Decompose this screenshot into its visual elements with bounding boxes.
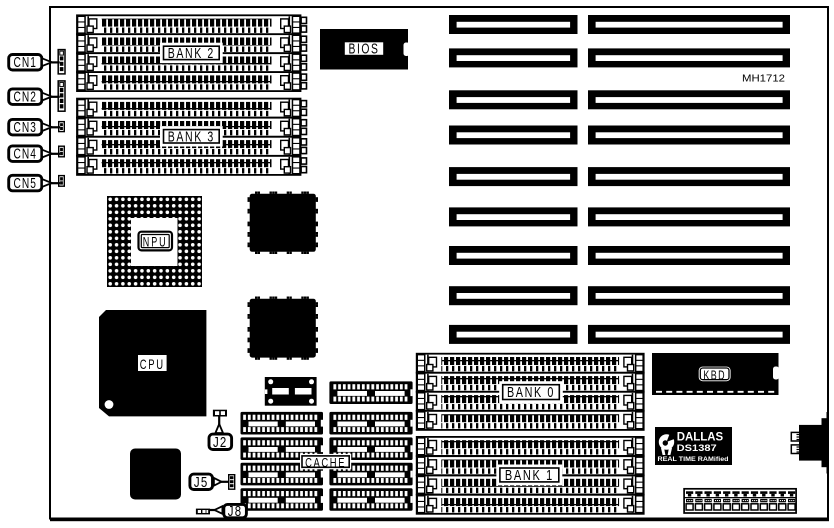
svg-text:CN5: CN5 bbox=[14, 176, 38, 192]
svg-text:CN1: CN1 bbox=[14, 55, 38, 71]
svg-text:REAL TIME RAMified: REAL TIME RAMified bbox=[658, 456, 729, 463]
svg-text:BIOS: BIOS bbox=[349, 42, 380, 58]
svg-text:KBD: KBD bbox=[703, 367, 726, 382]
svg-text:BANK 1: BANK 1 bbox=[505, 468, 554, 484]
svg-text:NPU: NPU bbox=[143, 235, 168, 250]
svg-text:CACHE: CACHE bbox=[305, 455, 346, 470]
svg-text:DALLAS: DALLAS bbox=[677, 431, 724, 443]
svg-text:CN4: CN4 bbox=[14, 147, 38, 163]
svg-text:CN3: CN3 bbox=[14, 120, 38, 136]
svg-text:CN2: CN2 bbox=[14, 90, 38, 106]
svg-text:J8: J8 bbox=[228, 504, 243, 520]
svg-text:CPU: CPU bbox=[140, 356, 165, 372]
svg-text:J5: J5 bbox=[194, 475, 209, 491]
svg-text:J2: J2 bbox=[213, 435, 228, 451]
svg-text:BANK 2: BANK 2 bbox=[168, 46, 215, 62]
svg-text:DS1387: DS1387 bbox=[677, 443, 717, 454]
svg-text:MH1712: MH1712 bbox=[742, 73, 785, 85]
svg-text:BANK 3: BANK 3 bbox=[168, 129, 215, 145]
svg-text:BANK 0: BANK 0 bbox=[507, 385, 555, 401]
